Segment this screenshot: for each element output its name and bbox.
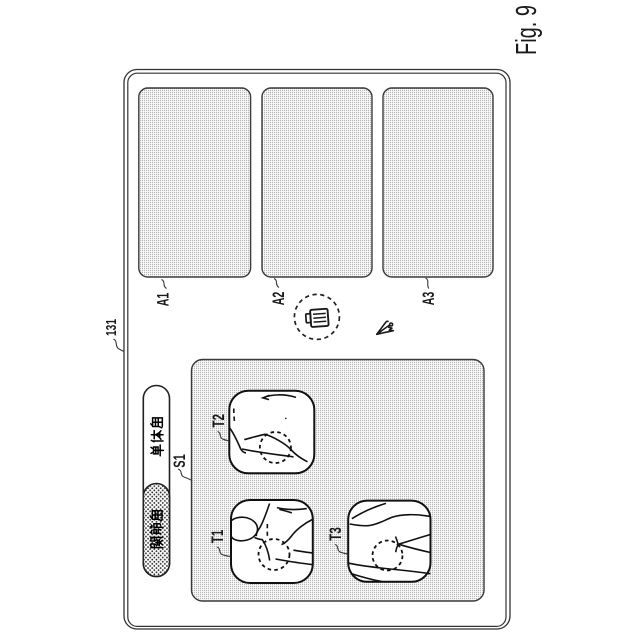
svg-text:A3: A3 xyxy=(420,292,438,306)
svg-text:Fig. 9: Fig. 9 xyxy=(511,5,543,55)
svg-text:T3: T3 xyxy=(327,527,345,541)
svg-text:T2: T2 xyxy=(210,414,228,428)
svg-text:S1: S1 xyxy=(171,454,189,468)
svg-text:T1: T1 xyxy=(209,530,227,544)
svg-text:131: 131 xyxy=(104,319,120,336)
svg-text:A2: A2 xyxy=(270,292,288,306)
svg-text:A1: A1 xyxy=(155,293,173,307)
